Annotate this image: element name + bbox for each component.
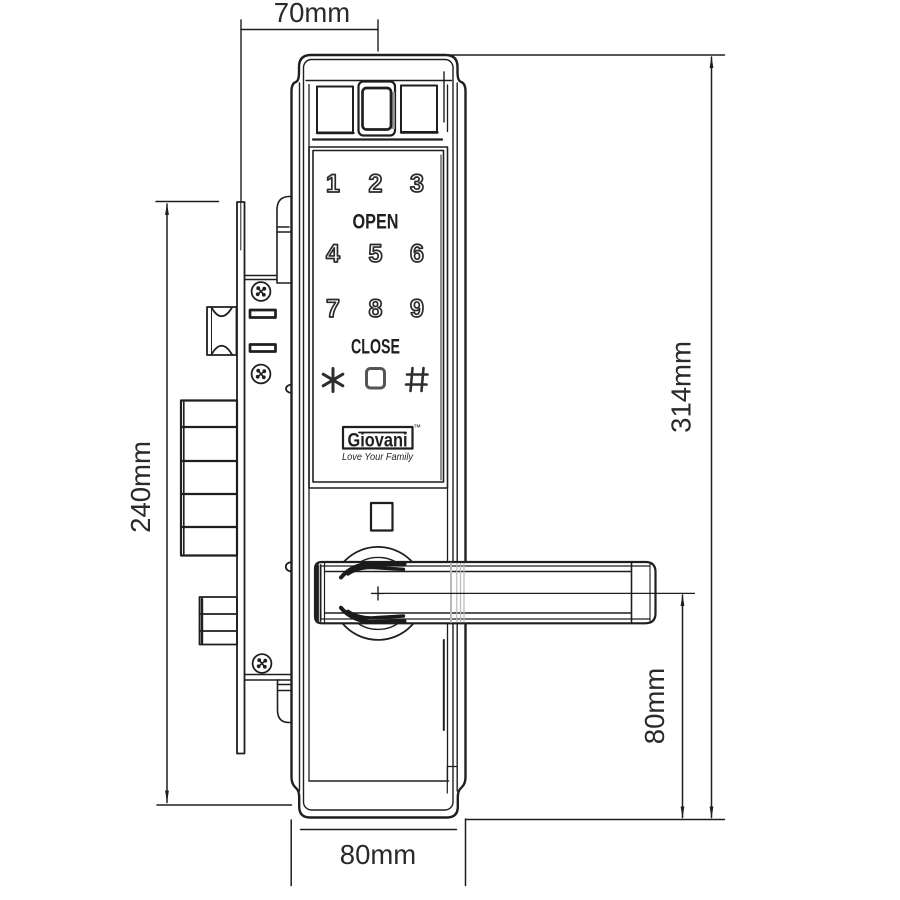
svg-text:4: 4 — [326, 240, 340, 268]
svg-text:1: 1 — [326, 170, 340, 198]
svg-text:™: ™ — [413, 423, 421, 432]
svg-text:3: 3 — [410, 170, 424, 198]
svg-text:5: 5 — [369, 240, 383, 268]
svg-text:240mm: 240mm — [125, 441, 156, 533]
svg-text:CLOSE: CLOSE — [351, 335, 400, 359]
svg-text:80mm: 80mm — [639, 668, 670, 744]
svg-text:70mm: 70mm — [274, 0, 350, 28]
svg-text:9: 9 — [410, 295, 424, 323]
svg-text:8: 8 — [369, 295, 383, 323]
svg-text:OPEN: OPEN — [353, 210, 399, 234]
svg-text:314mm: 314mm — [666, 341, 697, 433]
svg-text:6: 6 — [410, 240, 424, 268]
svg-text:Giovani: Giovani — [348, 431, 408, 452]
svg-text:2: 2 — [369, 170, 383, 198]
svg-text:Love Your Family: Love Your Family — [342, 451, 414, 463]
svg-text:7: 7 — [326, 295, 340, 323]
svg-text:80mm: 80mm — [340, 839, 416, 870]
